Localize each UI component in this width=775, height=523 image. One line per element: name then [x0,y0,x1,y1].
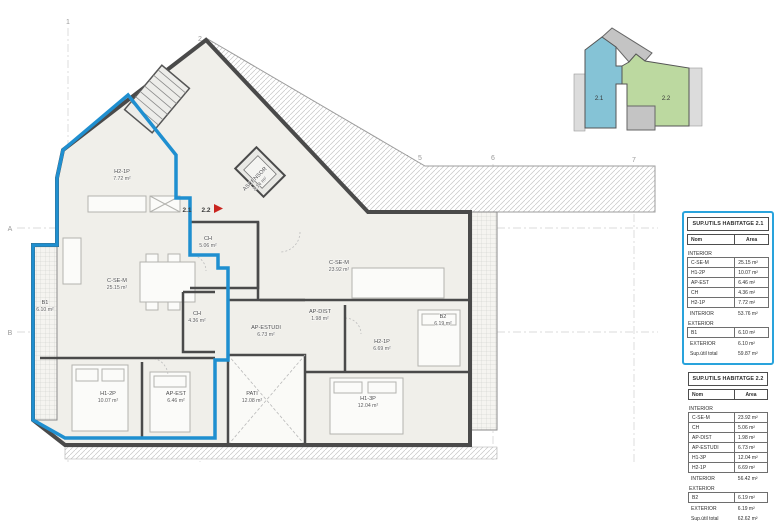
room-label: C-SE-M25.15 m² [107,278,128,291]
area-row: H2-1P7.72 m² [687,297,769,308]
area-tables-panel: SUP.UTILS HABITATGE 2.1 Nom Area INTERIO… [682,211,774,523]
keyplan-label-22: 2.2 [662,96,671,102]
keyplan-balcony-left [574,74,585,131]
grid-axis-label: A [8,226,13,233]
keyplan-balcony-right [689,68,702,126]
balcony-b2 [470,212,497,430]
room-label: H2-1P6.69 m² [373,339,391,352]
key-plan: 2.1 2.2 [572,16,717,141]
table-header: Nom Area [688,389,768,400]
room-label: AP-DIST1.98 m² [309,309,332,322]
area-table-habitatge-22: SUP.UTILS HABITATGE 2.2 Nom Area INTERIO… [682,370,774,523]
balcony-b1 [33,245,57,420]
table-rows: INTERIORC-SE-M23.92 m²CH5.06 m²AP-DIST1.… [688,405,768,523]
subtotal-row: EXTERIOR6.19 m² [688,504,768,513]
area-row: C-SE-M25.15 m² [687,257,769,268]
area-row: AP-DIST1.98 m² [688,432,768,443]
area-row: H1-2P10.07 m² [687,267,769,278]
col-header-nom: Nom [689,390,735,399]
subtotal-row: INTERIOR53.76 m² [687,309,769,318]
room-label: H2-1P7.72 m² [113,169,131,182]
grid-axis-label: 6 [491,155,495,162]
keyplan-label-21: 2.1 [595,96,604,102]
area-row: H1-3P12.04 m² [688,452,768,463]
table-header: Nom Area [687,234,769,245]
room-label: H1-2P10.07 m² [98,391,119,404]
subtotal-row: INTERIOR56.42 m² [688,474,768,483]
col-header-area: Area [735,235,768,244]
area-table-habitatge-21: SUP.UTILS HABITATGE 2.1 Nom Area INTERIO… [682,211,774,365]
area-row: B16.10 m² [687,327,769,338]
room-label: C-SE-M23.92 m² [329,260,350,273]
area-row: H2-1P6.69 m² [688,462,768,473]
area-row: AP-EST6.46 m² [687,277,769,288]
subtotal-row: EXTERIOR6.10 m² [687,339,769,348]
room-label: H1-3P12.04 m² [358,396,379,409]
area-row: AP-ESTUDI6.73 m² [688,442,768,453]
col-header-nom: Nom [688,235,735,244]
grid-axis-label: B [8,330,13,337]
total-row: Sup.útil total62.62 m² [688,514,768,523]
total-row: Sup.útil total59.87 m² [687,349,769,358]
grid-axis-label: 1 [66,19,70,26]
unit-label-21: 2.1 [182,207,191,214]
table-title: SUP.UTILS HABITATGE 2.2 [688,372,768,386]
room-label: AP-EST6.46 m² [166,391,187,404]
grid-axis-label: 7 [632,157,636,164]
keyplan-patio [627,106,655,130]
keyplan-unit-21 [585,37,622,128]
bottom-hatch-strip [65,447,497,459]
table-rows: INTERIORC-SE-M25.15 m²H1-2P10.07 m²AP-ES… [687,250,769,358]
area-row: CH4.36 m² [687,287,769,298]
grid-axis-label: 5 [418,155,422,162]
unit-label-22: 2.2 [201,207,210,214]
patio [228,355,305,445]
table-title: SUP.UTILS HABITATGE 2.1 [687,217,769,231]
col-header-area: Area [735,390,767,399]
area-row: B26.19 m² [688,492,768,503]
area-row: C-SE-M23.92 m² [688,412,768,423]
area-row: CH5.06 m² [688,422,768,433]
